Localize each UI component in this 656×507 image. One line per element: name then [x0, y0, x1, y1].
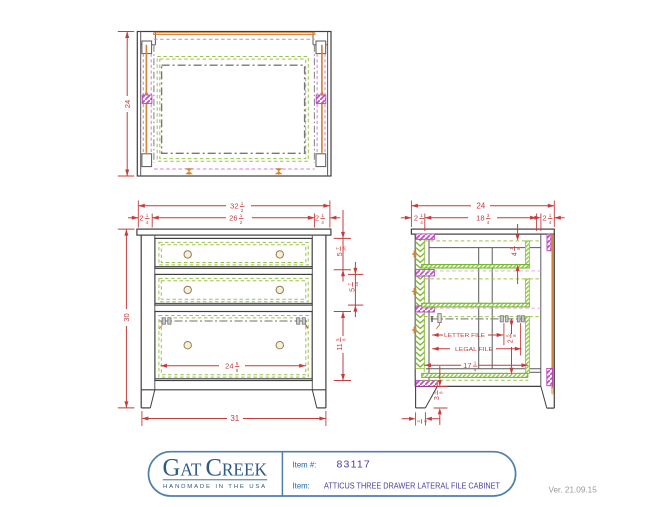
svg-text:31: 31 [230, 414, 239, 423]
svg-text:1: 1 [321, 213, 324, 218]
svg-text:2: 2 [240, 220, 243, 225]
svg-text:ATTICUS THREE DRAWER LATERAL F: ATTICUS THREE DRAWER LATERAL FILE CABINE… [324, 481, 500, 490]
svg-text:GAT CREEK: GAT CREEK [163, 455, 268, 482]
svg-text:Item:: Item: [293, 481, 310, 490]
svg-text:Item #:: Item #: [293, 460, 317, 469]
svg-text:1: 1 [241, 201, 244, 206]
svg-text:HANDMADE IN THE USA: HANDMADE IN THE USA [163, 484, 267, 490]
svg-text:24: 24 [476, 202, 485, 211]
svg-text:83117: 83117 [337, 458, 371, 470]
svg-text:2: 2 [542, 213, 546, 222]
svg-text:5: 5 [236, 361, 239, 366]
svg-text:4: 4 [487, 220, 490, 225]
svg-text:Ver. 21.09.15: Ver. 21.09.15 [549, 486, 598, 495]
svg-text:24: 24 [123, 100, 132, 108]
svg-text:2: 2 [315, 213, 319, 222]
svg-text:18: 18 [476, 213, 484, 222]
svg-text:16: 16 [354, 281, 359, 286]
svg-text:1: 1 [474, 361, 477, 366]
svg-text:4: 4 [549, 220, 552, 225]
svg-text:4: 4 [146, 220, 149, 225]
svg-text:17: 17 [463, 361, 471, 370]
svg-text:2: 2 [139, 213, 143, 222]
svg-text:4: 4 [321, 220, 324, 225]
svg-text:2: 2 [508, 339, 515, 343]
svg-text:11: 11 [337, 343, 344, 350]
svg-text:3: 3 [434, 396, 441, 400]
svg-text:LEGAL FILE: LEGAL FILE [455, 347, 493, 353]
svg-text:8: 8 [236, 368, 239, 373]
svg-text:24: 24 [225, 361, 233, 370]
svg-text:5: 5 [337, 252, 344, 256]
svg-text:2: 2 [414, 213, 418, 222]
svg-text:1: 1 [240, 213, 243, 218]
svg-text:1: 1 [549, 213, 552, 218]
svg-text:LETTER FILE: LETTER FILE [444, 333, 485, 339]
svg-text:32: 32 [230, 201, 238, 210]
svg-text:16: 16 [342, 246, 347, 251]
svg-text:30: 30 [122, 313, 131, 321]
svg-text:26: 26 [229, 213, 237, 222]
svg-text:1: 1 [146, 213, 149, 218]
svg-text:4: 4 [511, 252, 518, 256]
svg-text:4: 4 [474, 368, 477, 373]
svg-text:3: 3 [487, 213, 490, 218]
svg-text:1: 1 [420, 213, 423, 218]
svg-text:4: 4 [420, 220, 423, 225]
svg-text:5: 5 [349, 288, 356, 292]
